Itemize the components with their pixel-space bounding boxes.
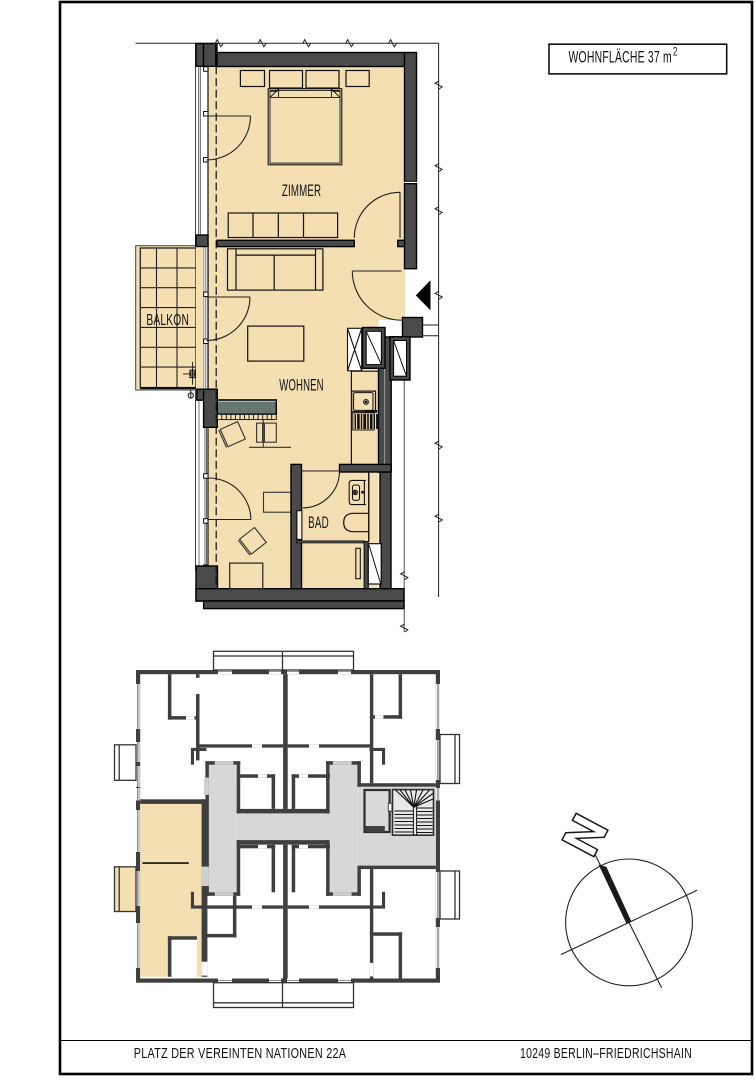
svg-text:ZIMMER: ZIMMER — [282, 180, 321, 200]
svg-text:2: 2 — [673, 46, 678, 59]
svg-text:BAD: BAD — [308, 512, 329, 532]
svg-text:BALKON: BALKON — [146, 311, 189, 329]
svg-text:10249 BERLIN–FRIEDRICHSHAIN: 10249 BERLIN–FRIEDRICHSHAIN — [520, 1044, 692, 1061]
svg-text:PLATZ DER VEREINTEN NATIONEN 2: PLATZ DER VEREINTEN NATIONEN 22A — [134, 1044, 346, 1061]
svg-text:WOHNFLÄCHE 37 m: WOHNFLÄCHE 37 m — [569, 47, 672, 66]
svg-text:WOHNEN: WOHNEN — [279, 376, 323, 394]
